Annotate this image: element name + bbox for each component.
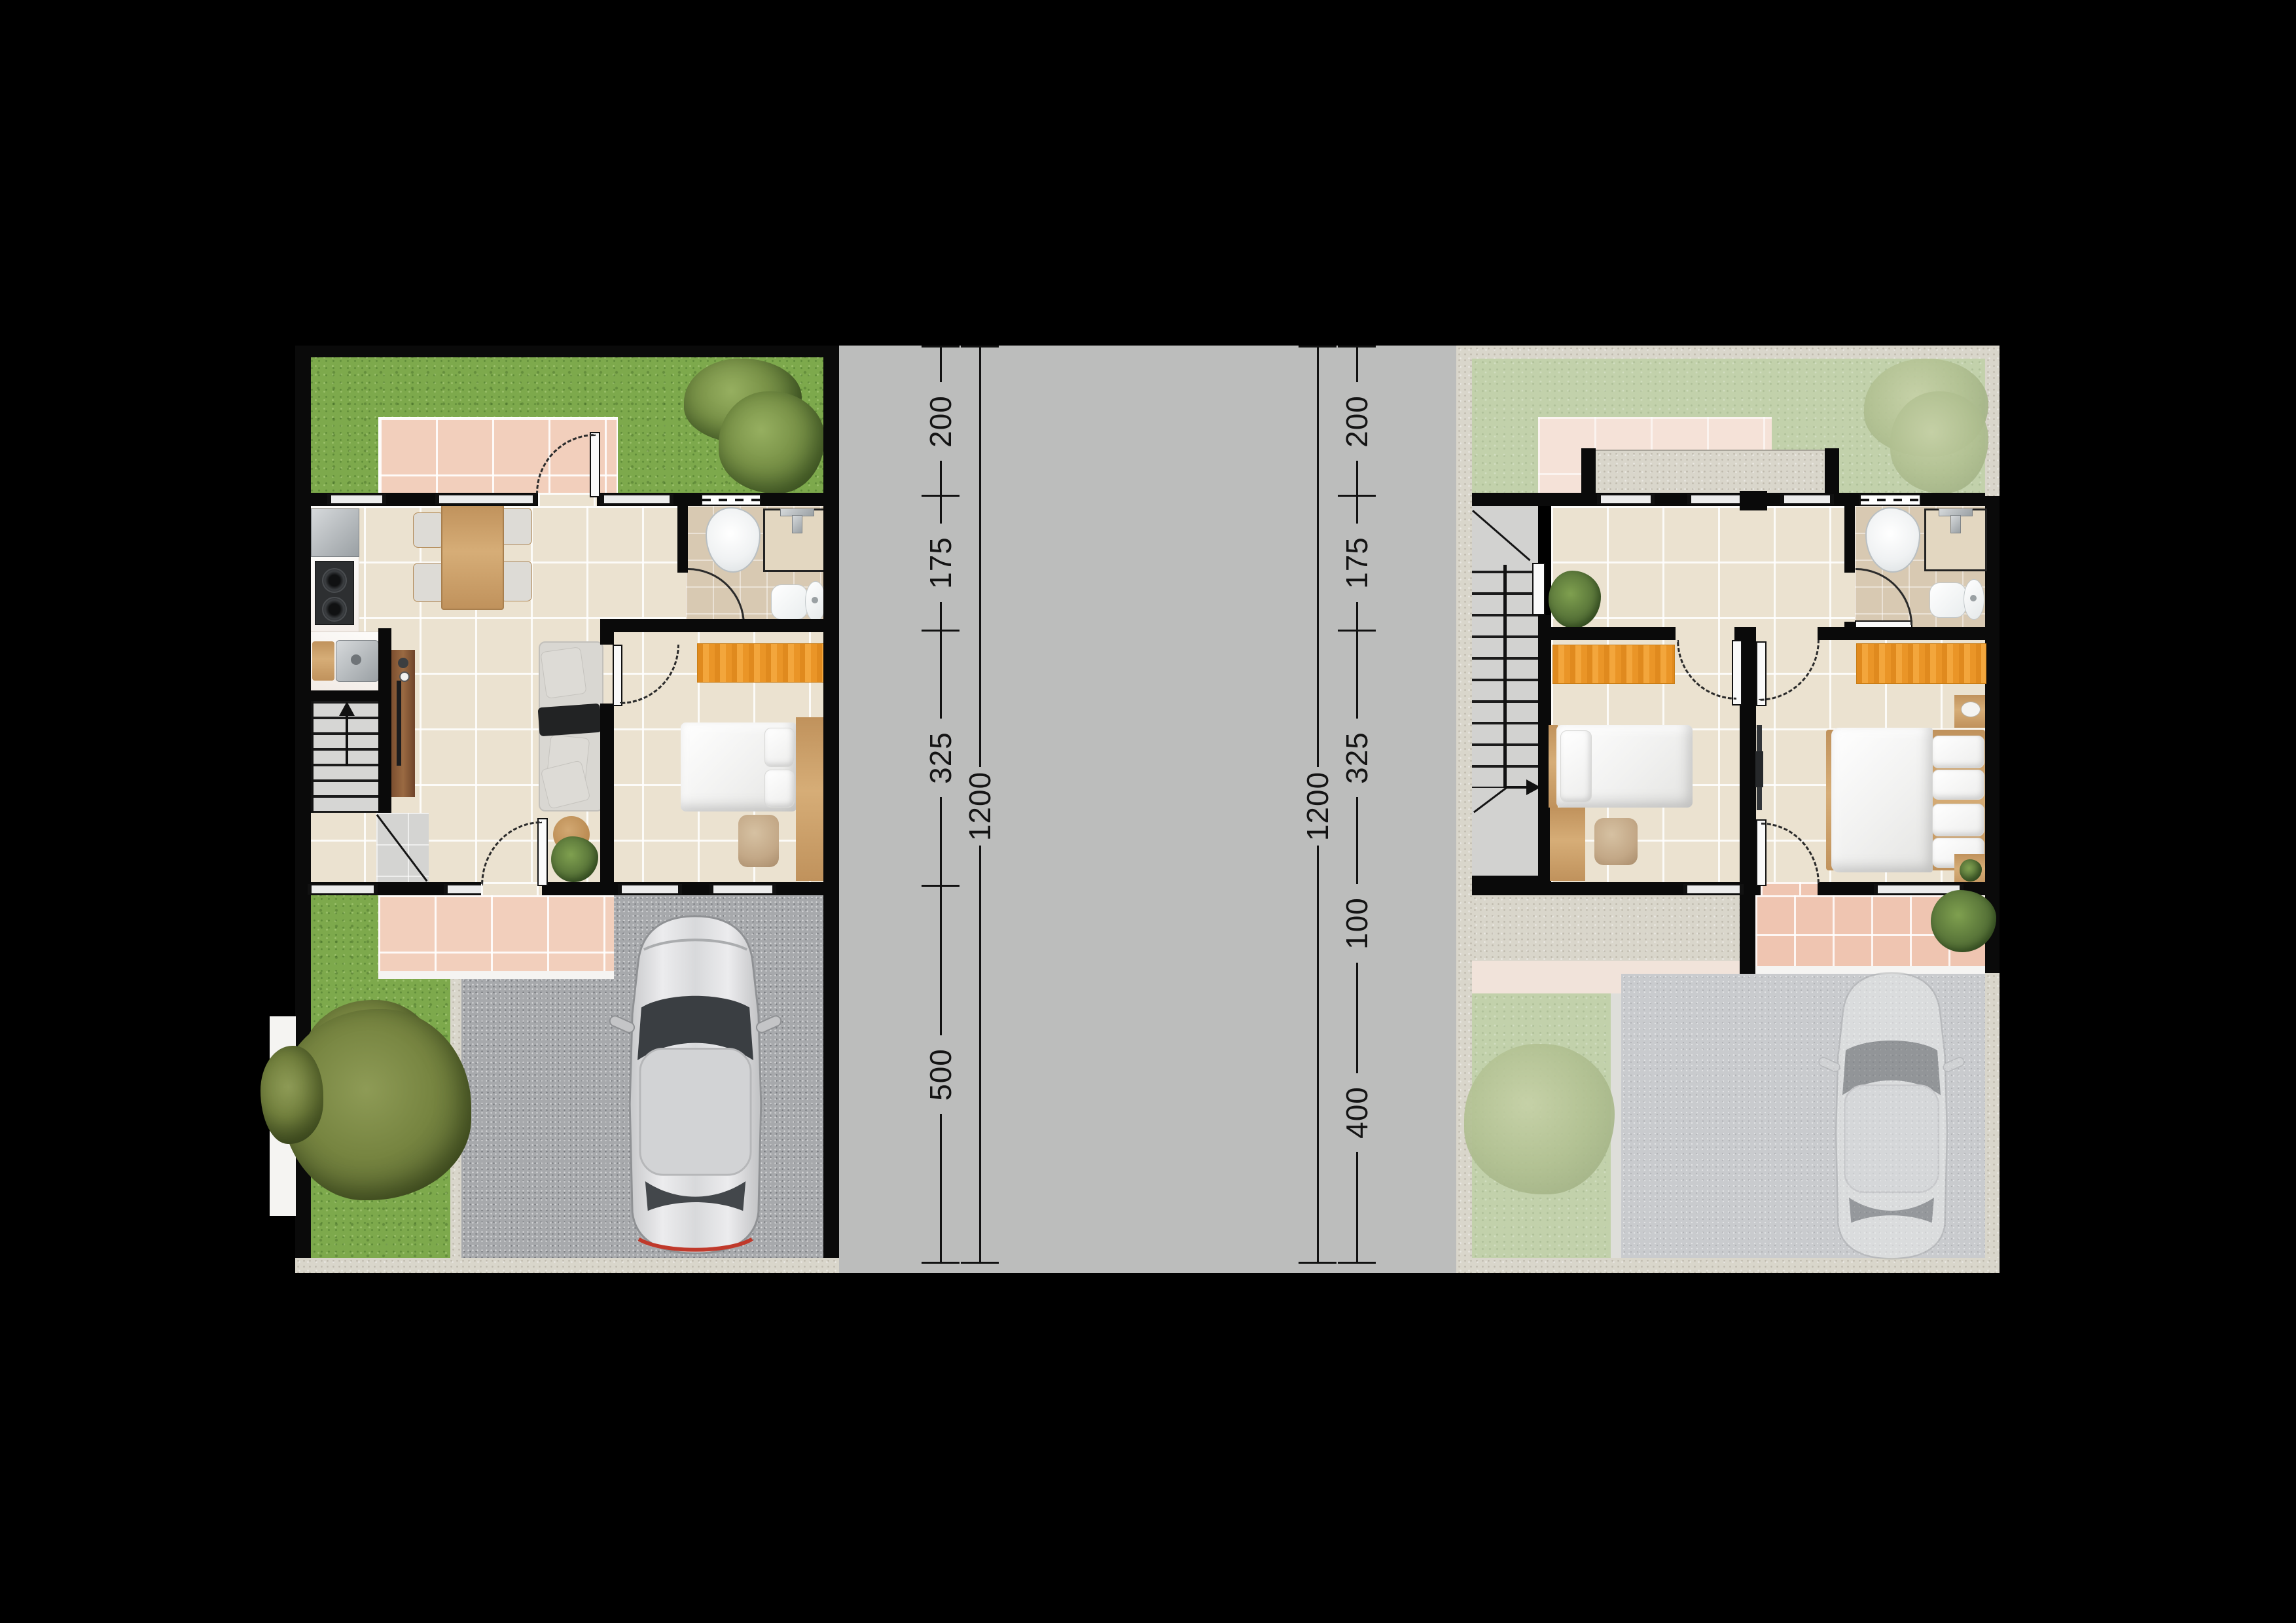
- dimension-tick: [922, 1262, 960, 1264]
- car-top-view: [599, 910, 792, 1260]
- kitchen-window: [327, 494, 386, 505]
- dimension-tick: [1338, 630, 1376, 632]
- hall-bedroom-wall-b: [1734, 627, 1756, 640]
- upper-toilet-bowl: [1929, 582, 1966, 618]
- dimension-tick: [922, 630, 960, 632]
- kitchen-faucet-icon: [351, 654, 361, 665]
- plan1-right-wall: [823, 346, 839, 1258]
- balcony-side-wall: [1740, 895, 1755, 974]
- dim-label-left-325: 325: [920, 719, 961, 797]
- dim-label-right-1200: 1200: [1297, 767, 1338, 846]
- rear-balcony-post: [1581, 448, 1596, 497]
- bedroom-window: [618, 884, 682, 895]
- bathroom-left-wall: [677, 506, 688, 573]
- dining-window: [435, 494, 537, 505]
- bedroom1-wardrobe: [1552, 645, 1675, 684]
- dimension-tick: [922, 495, 960, 497]
- nightstand-lamp-icon: [1961, 702, 1981, 717]
- dim-label-right-175: 175: [1336, 524, 1378, 602]
- dining-chair: [500, 561, 532, 601]
- front-porch: [378, 895, 614, 971]
- bedroom2-pillow: [1932, 736, 1984, 768]
- dim-label-left-175: 175: [920, 524, 961, 602]
- rear-balcony-door: [1740, 491, 1767, 510]
- bedroom2-duvet: [1831, 728, 1933, 872]
- plan2-right-border-bottom: [1985, 973, 2000, 1258]
- plan2-top-border: [1456, 346, 2000, 359]
- cooktop-burner-icon: [322, 568, 347, 593]
- dim-label-left-200: 200: [920, 382, 961, 461]
- dining-chair: [500, 508, 532, 545]
- console-decor-icon: [398, 658, 408, 668]
- balcony-door-opening: [1761, 882, 1818, 895]
- plan1-top-wall: [295, 346, 839, 357]
- front-tree-spill: [260, 1046, 323, 1144]
- floorplan-sheet: 200 175 325 500 1200 200 175 325 100 400…: [0, 0, 2296, 1623]
- dining-chair: [413, 512, 444, 548]
- sofa-cushion: [540, 647, 586, 699]
- stair-landing-top: [1472, 506, 1538, 565]
- tv-icon: [397, 681, 401, 766]
- front-tree-faded: [1464, 1044, 1615, 1194]
- upper-bath-vent-window: [1859, 494, 1921, 506]
- bed-pillow: [764, 770, 795, 808]
- upper-front-window: [1683, 884, 1744, 895]
- porch-step-edge: [378, 971, 614, 979]
- dim-label-right-200: 200: [1336, 382, 1378, 461]
- console-decor-icon: [399, 671, 410, 682]
- dimension-tick: [1338, 346, 1376, 348]
- bedroom2-wardrobe: [1856, 643, 1986, 684]
- stair-landing-bottom: [1472, 788, 1538, 876]
- patio-door-opening: [538, 493, 597, 506]
- bedroom2-tv-mount: [1755, 751, 1763, 787]
- toilet-button: [812, 597, 818, 603]
- stair-up-arrow-icon: [339, 702, 355, 716]
- bedroom-side-unit: [796, 717, 823, 881]
- cooktop-burner-icon: [322, 597, 347, 622]
- upper-bath-left-wall: [1844, 506, 1855, 573]
- dim-label-right-100: 100: [1336, 884, 1378, 963]
- dimension-tick: [1299, 1262, 1336, 1264]
- hall-bedroom-wall-c: [1818, 627, 1985, 640]
- bedroom1-pillow: [1560, 730, 1592, 802]
- dim-label-left-1200: 1200: [959, 767, 1001, 846]
- sofa-throw-blanket: [538, 704, 602, 737]
- bedroom-left-wall-upper: [600, 628, 614, 645]
- toilet-bowl: [771, 584, 808, 620]
- car-top-view-faded: [1800, 969, 1983, 1263]
- bedroom1-desk: [1550, 808, 1585, 881]
- dimension-chain-line-left: [940, 347, 942, 1263]
- bedroom2-pillow: [1932, 804, 1984, 836]
- bedroom-window-2: [709, 884, 776, 895]
- dimension-tick: [961, 346, 999, 348]
- dimension-tick: [961, 1262, 999, 1264]
- upper-window: [1687, 494, 1745, 505]
- hall-window: [600, 494, 673, 505]
- bedroom-wardrobe: [697, 643, 825, 683]
- dimension-tick: [1338, 1262, 1376, 1264]
- cutting-board: [312, 641, 334, 681]
- upper-window: [1780, 494, 1834, 505]
- stair-rail-end: [1532, 563, 1545, 615]
- dimension-tick: [922, 346, 960, 348]
- dimension-tick: [922, 885, 960, 887]
- plan1-bottom-sidewalk: [295, 1258, 839, 1273]
- shower-head-icon: [792, 515, 802, 533]
- fridge: [311, 508, 359, 557]
- plan2-right-border-top: [1985, 346, 2000, 496]
- front-roof-strip: [1472, 895, 1740, 961]
- bathroom-vent-window: [701, 494, 761, 506]
- backyard-tree-faded: [1890, 391, 1988, 493]
- dimension-tick: [1299, 346, 1336, 348]
- upper-window: [1597, 494, 1655, 505]
- dim-label-right-400: 400: [1336, 1073, 1378, 1152]
- bedroom2-pillow: [1932, 770, 1984, 800]
- dining-table: [441, 504, 504, 610]
- bedroom1-chair: [1594, 818, 1638, 865]
- rear-balcony-post: [1825, 448, 1839, 497]
- hall-bedroom-wall-a: [1551, 627, 1676, 640]
- stair-direction-line: [1505, 786, 1529, 789]
- upper-shower-head-icon: [1950, 515, 1961, 533]
- stair-direction-line: [346, 715, 348, 766]
- bedroom-top-wall: [600, 619, 823, 632]
- tv-wall: [378, 628, 391, 813]
- upper-toilet-button: [1970, 595, 1977, 601]
- dim-label-right-325: 325: [1336, 719, 1378, 797]
- bedroom-chair: [738, 815, 779, 867]
- bedroom-left-wall-lower: [600, 704, 614, 882]
- dimension-tick: [1338, 495, 1376, 497]
- stair-window: [308, 884, 378, 895]
- stair-divider: [1503, 537, 1507, 788]
- backyard-tree: [719, 391, 825, 493]
- dining-chair: [413, 563, 444, 602]
- rear-balcony: [1596, 450, 1825, 499]
- dim-label-left-500: 500: [920, 1035, 961, 1114]
- bed-pillow: [764, 728, 795, 767]
